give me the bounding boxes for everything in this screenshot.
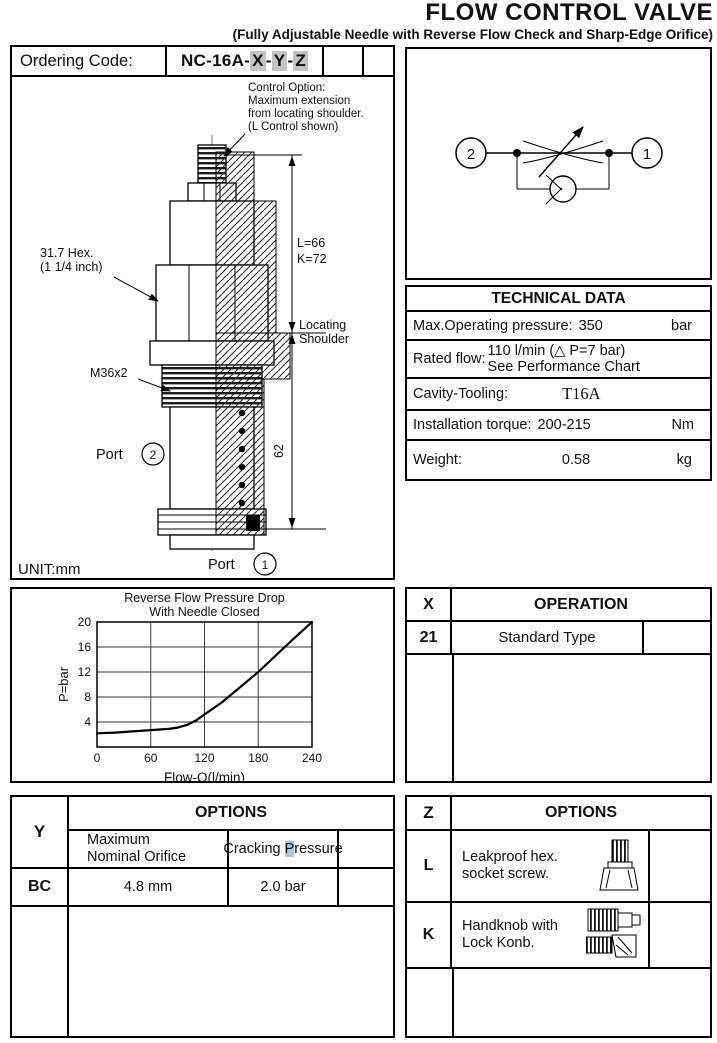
valve-cross-section-drawing: Control Option: Maximum extension from l… [12, 77, 393, 578]
chart-xtick: 0 [94, 751, 101, 765]
unit-label: UNIT:mm [18, 561, 81, 578]
hydraulic-symbol: 2 1 [407, 49, 710, 278]
needle-valve-symbol [523, 127, 603, 177]
tech-label: Cavity-Tooling: [413, 386, 508, 402]
operation-row-21: 21 Standard Type [407, 622, 710, 655]
symbol-port-left: 2 [467, 146, 475, 163]
chart-xtick: 60 [144, 751, 158, 765]
tech-value: 0.58 [562, 452, 590, 468]
tech-unit: kg [677, 452, 704, 468]
options-z-col-header: Z [407, 797, 452, 829]
note-line: Control Option: [248, 82, 325, 94]
operation-row-code: 21 [407, 622, 452, 653]
orifice-value: 4.8 mm [69, 869, 229, 905]
tech-row-torque: Installation torque: 200-215 Nm [407, 411, 710, 441]
options-y-row-code: BC [12, 869, 67, 907]
dim-62: 62 [272, 444, 286, 458]
tech-row-rated-flow: Rated flow: 110 l/min (△ P=7 bar) See Pe… [407, 341, 710, 379]
svg-text:Port: Port [96, 447, 123, 463]
seal [246, 515, 260, 531]
options-y-row-bc: 4.8 mm 2.0 bar [69, 869, 393, 907]
subheader-text: ressure [294, 841, 342, 857]
tech-row-cavity: Cavity-Tooling: T16A [407, 379, 710, 411]
port-2-label: Port 2 [96, 443, 164, 465]
tech-label: Installation torque: [413, 417, 532, 433]
options-z-row-empty-cell [648, 903, 710, 967]
tech-label: Max.Operating pressure: [413, 318, 573, 334]
chart-xlabel: Flow-Q(l/min) [164, 770, 245, 781]
operation-header-row: X OPERATION [407, 589, 710, 622]
ordering-code-row: Ordering Code: NC-16A-X-Y-Z [12, 47, 393, 77]
check-valve-symbol [517, 153, 609, 204]
symbol-port-right: 1 [643, 146, 651, 163]
chart-ytick: 20 [78, 615, 92, 629]
hydraulic-symbol-panel: 2 1 [405, 47, 712, 280]
operation-col-header: X [407, 589, 452, 620]
tech-value: 350 [579, 318, 603, 334]
svg-text:1: 1 [262, 558, 269, 572]
chart-ytick: 4 [84, 715, 91, 729]
option-l-text: Leakproof hex.socket screw. [462, 849, 558, 883]
performance-chart-panel: 06012018024048121620Reverse Flow Pressur… [10, 587, 395, 783]
options-z-row-empty-cell [648, 831, 710, 901]
tech-unit: Nm [671, 417, 704, 433]
highlighted-letter: P [285, 841, 295, 857]
svg-text:M36x2: M36x2 [90, 366, 128, 380]
subheader-nominal-orifice: Maximum Nominal Orifice [69, 831, 229, 867]
options-z-empty-area [407, 969, 710, 1036]
page-header: FLOW CONTROL VALVE (Fully Adjustable Nee… [233, 0, 713, 43]
tech-label: Weight: [413, 452, 462, 468]
options-z-row-k: K Handknob withLock Konb. [407, 903, 710, 969]
options-z-row-l: L Leakproof hex.socket screw. [407, 831, 710, 903]
ordering-code-label: Ordering Code: [12, 47, 167, 75]
options-z-row-code: L [407, 831, 452, 901]
tech-row-pressure: Max.Operating pressure: 350 bar [407, 312, 710, 341]
port-1-label: Port 1 [208, 553, 276, 575]
option-text-line: socket screw. [462, 866, 549, 882]
subheader-line: Nominal Orifice [87, 849, 186, 865]
locating-shoulder-label: Locating [299, 318, 346, 332]
option-k-text: Handknob withLock Konb. [462, 918, 558, 952]
options-y-col-header: Y [12, 797, 67, 869]
chart-ylabel: P=bar [56, 666, 71, 702]
options-y-table: Y BC OPTIONS Maximum Nominal Orifice Cra… [10, 795, 395, 1038]
subheader-line: Maximum [87, 832, 150, 848]
chart-title: Reverse Flow Pressure Drop [124, 591, 285, 605]
tech-row-weight: Weight: 0.58 kg [407, 441, 710, 479]
handknob-icon [586, 907, 644, 963]
technical-data-panel: TECHNICAL DATA Max.Operating pressure: 3… [405, 285, 712, 481]
subheader-cracking-pressure: Cracking Pressure [229, 831, 339, 867]
chart-ytick: 8 [84, 690, 91, 704]
note-line: (L Control shown) [248, 121, 339, 133]
operation-row-label: Standard Type [452, 622, 642, 653]
tech-unit: bar [671, 318, 704, 334]
socket-screw-icon [596, 838, 642, 894]
ordering-code-z: Z [293, 51, 308, 71]
tech-value: See Performance Chart [488, 359, 640, 375]
svg-text:Port: Port [208, 557, 235, 573]
datasheet-page: FLOW CONTROL VALVE (Fully Adjustable Nee… [0, 0, 717, 1043]
option-text-line: Lock Konb. [462, 935, 535, 951]
hex-label: 31.7 Hex. (1 1/4 inch) [40, 246, 158, 301]
ordering-code-empty-cell [324, 47, 364, 75]
page-title: FLOW CONTROL VALVE [233, 0, 713, 26]
ordering-code-value: NC-16A-X-Y-Z [167, 47, 324, 75]
chart-title-line2: With Needle Closed [149, 605, 260, 619]
hex-leader-arrow [114, 277, 158, 301]
operation-table: X OPERATION 21 Standard Type [405, 587, 712, 783]
option-text-line: Handknob with [462, 918, 558, 934]
svg-text:31.7 Hex.: 31.7 Hex. [40, 246, 94, 260]
valve-drawing-panel: Ordering Code: NC-16A-X-Y-Z [10, 45, 395, 580]
thread-label: M36x2 [90, 366, 170, 391]
dim-l: L=66 [297, 236, 325, 250]
ordering-code-x: X [250, 51, 266, 71]
tech-value: 200-215 [538, 417, 591, 433]
svg-text:2: 2 [150, 448, 157, 462]
performance-chart: 06012018024048121620Reverse Flow Pressur… [12, 589, 393, 781]
options-y-code-column: Y BC [12, 797, 69, 1036]
note-line: Maximum extension [248, 95, 350, 107]
ordering-code-y: Y [272, 51, 288, 71]
options-z-header-row: Z OPTIONS [407, 797, 710, 831]
options-y-subheader-row: Maximum Nominal Orifice Cracking Pressur… [69, 831, 393, 869]
chart-xtick: 120 [194, 751, 214, 765]
options-y-header: OPTIONS [69, 797, 393, 831]
control-option-note: Control Option: Maximum extension from l… [224, 82, 364, 156]
options-z-row-code: K [407, 903, 452, 967]
chart-ytick: 12 [78, 665, 92, 679]
dim-k: K=72 [297, 252, 327, 266]
chart-xtick: 240 [302, 751, 322, 765]
operation-row-empty-cell [642, 622, 710, 653]
pressure-value: 2.0 bar [229, 869, 339, 905]
nose-tip [170, 535, 254, 549]
tech-value: T16A [562, 384, 601, 404]
section-hatch [216, 152, 290, 535]
tech-label: Rated flow: [413, 351, 486, 367]
subheader-text: Cracking [223, 841, 280, 857]
operation-empty-area [407, 655, 710, 781]
chart-ytick: 16 [78, 640, 92, 654]
locating-shoulder-label: Shoulder [299, 332, 349, 346]
option-text-line: Leakproof hex. [462, 849, 558, 865]
svg-text:(1 1/4 inch): (1 1/4 inch) [40, 260, 103, 274]
technical-data-header: TECHNICAL DATA [407, 287, 710, 312]
note-line: from locating shoulder. [248, 108, 364, 120]
options-z-header: OPTIONS [452, 797, 710, 829]
chart-xtick: 180 [248, 751, 268, 765]
page-subtitle: (Fully Adjustable Needle with Reverse Fl… [233, 26, 713, 43]
tech-value: 110 l/min (△ P=7 bar) [488, 343, 626, 359]
options-z-table: Z OPTIONS L Leakproof hex.socket screw. [405, 795, 712, 1038]
ordering-code-prefix: NC-16A- [181, 51, 250, 71]
operation-header: OPERATION [452, 589, 710, 620]
